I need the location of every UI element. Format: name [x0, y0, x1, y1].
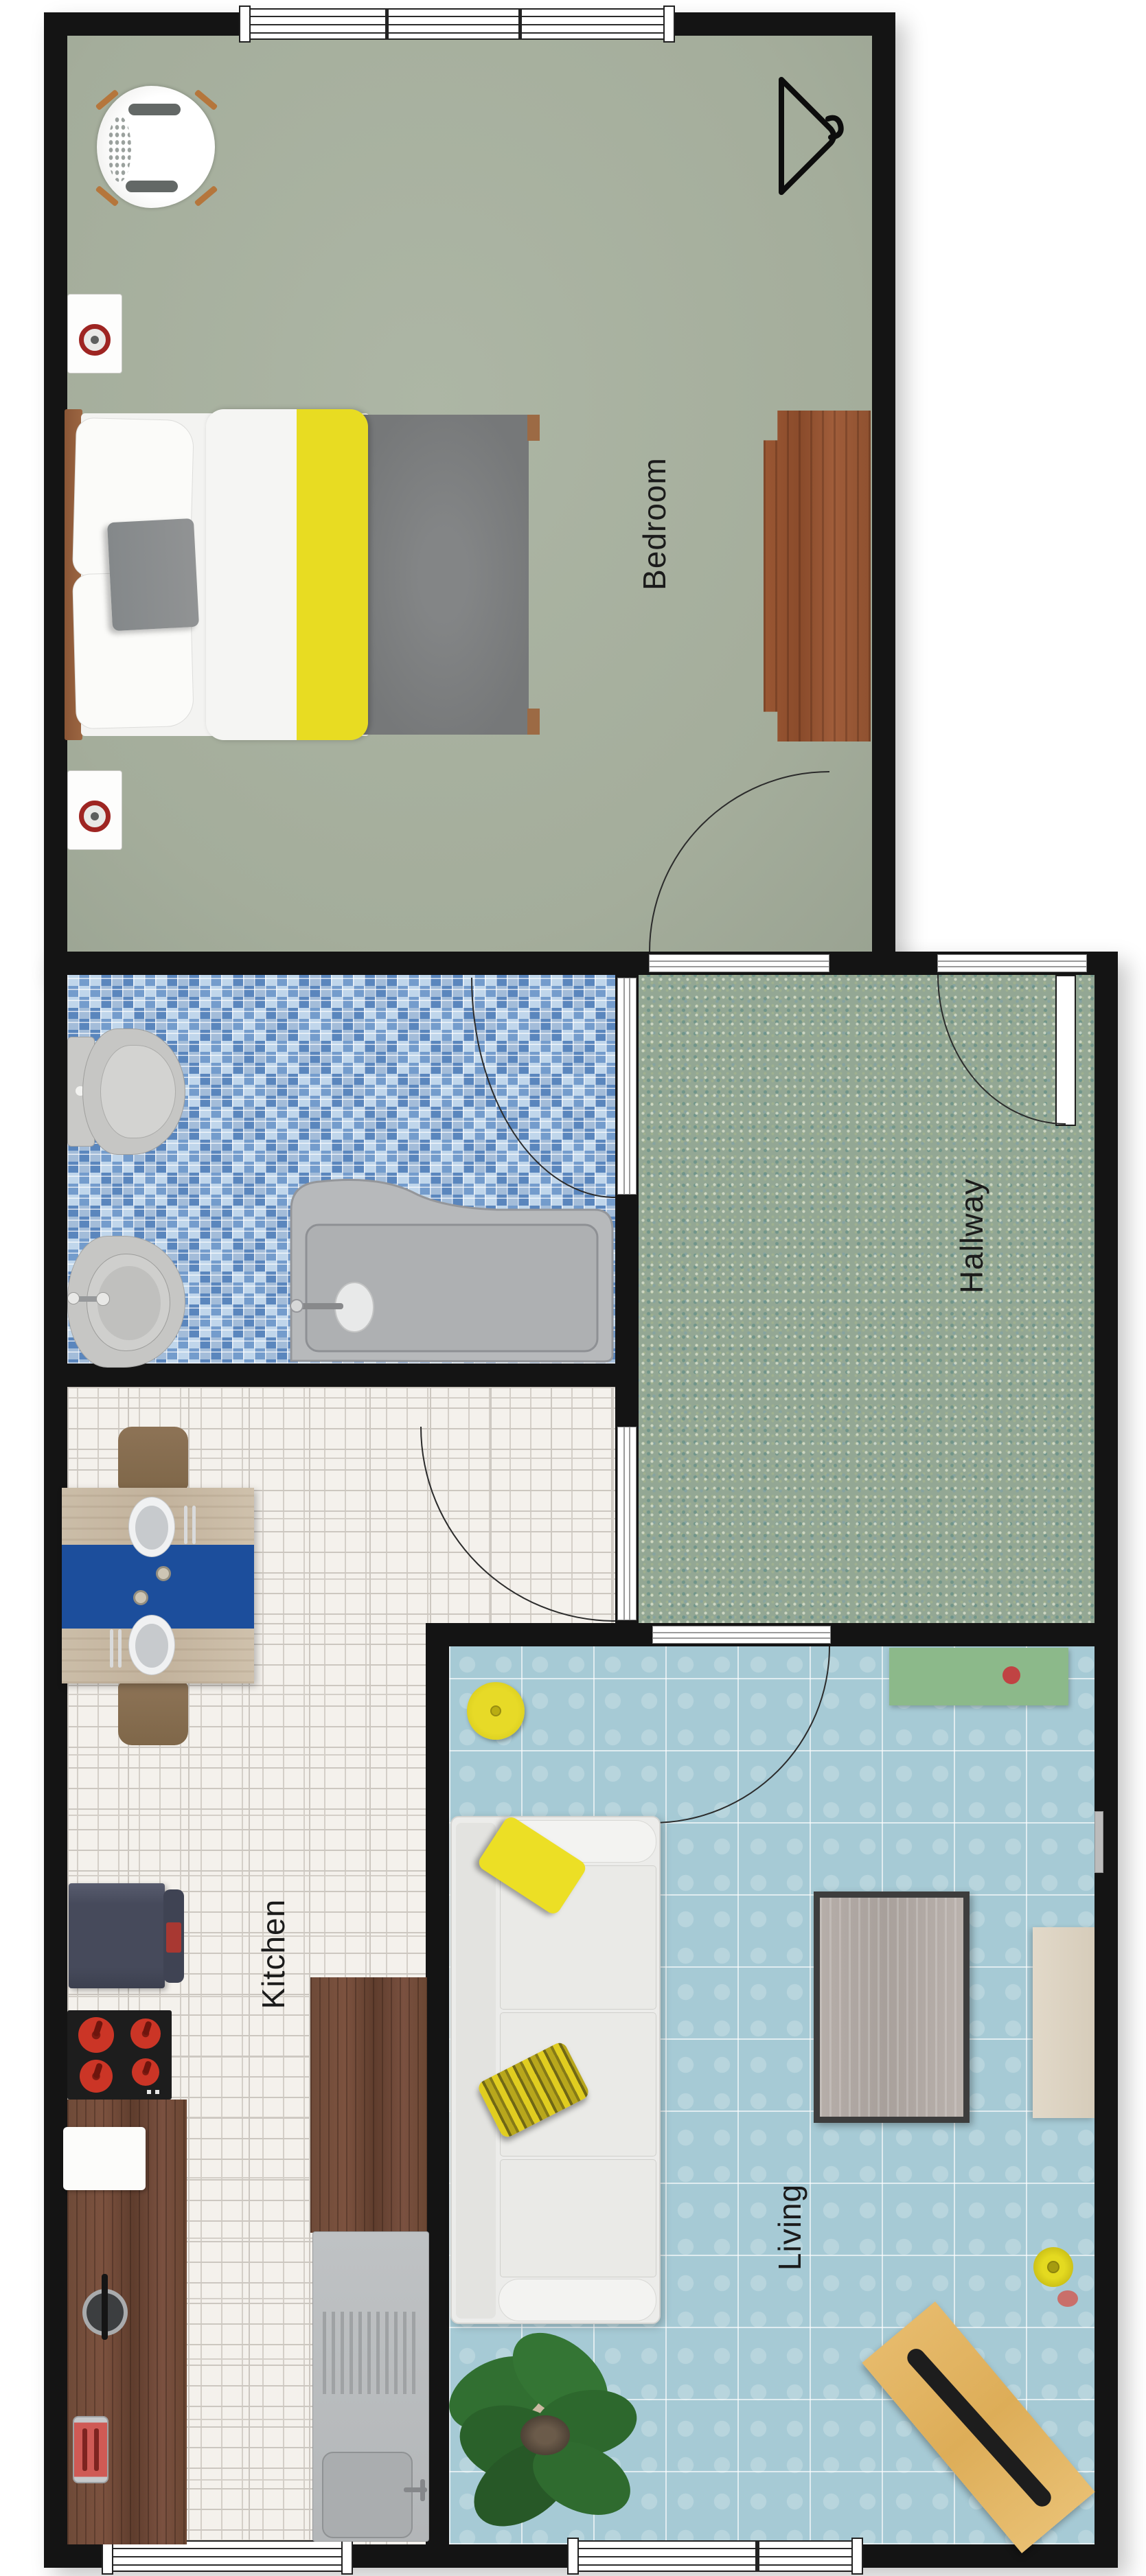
sofa-seat: [500, 2159, 656, 2277]
living-window-jamb-left: [567, 2538, 579, 2575]
burner-mark: [142, 2021, 152, 2036]
burner-mark: [143, 2060, 152, 2074]
side-table: [1033, 1927, 1095, 2118]
kitchen-window-jamb-right: [341, 2538, 353, 2575]
chair-leaf-pattern: [108, 116, 131, 182]
dining-chair: [118, 1427, 188, 1490]
shell-chair: [93, 84, 219, 211]
burner: [80, 2060, 113, 2093]
sofa: [450, 1816, 661, 2324]
living-window-mullion: [755, 2542, 759, 2571]
coffee-table: [814, 1891, 970, 2123]
floor-lamp-center: [1047, 2261, 1059, 2273]
bedroom-window-jamb-left: [239, 5, 251, 43]
bed-accent-pillow: [107, 518, 199, 631]
living-window-jamb-right: [851, 2538, 863, 2575]
glass: [133, 1590, 148, 1605]
cooktop-mark: [155, 2090, 159, 2094]
hallway-label: Hallway: [953, 1178, 990, 1293]
toaster: [73, 2416, 108, 2483]
dining-chair: [118, 1682, 188, 1745]
dresser: [764, 411, 871, 741]
tv-bench: [889, 1648, 1068, 1705]
hanger-icon: [770, 74, 846, 198]
bedroom-window-mullion: [385, 10, 389, 38]
bidet-faucet-knob: [96, 1292, 110, 1306]
lamp-accent-dot: [1057, 2290, 1078, 2307]
bed-frame-corner: [527, 709, 540, 735]
burner: [130, 2019, 161, 2049]
floor-lamp: [1033, 2247, 1073, 2287]
cutting-board: [63, 2127, 146, 2190]
chair-armrest-slot: [126, 181, 178, 192]
bed-frame-corner: [527, 415, 540, 441]
bed-duvet: [206, 409, 368, 740]
bathroom-door-opening: [617, 978, 637, 1195]
bedroom-window: [249, 8, 665, 40]
tv-bench-knob: [1002, 1666, 1020, 1684]
radiator: [1095, 1811, 1103, 1873]
floor-plan: Bedroom Hallway: [0, 0, 1146, 2576]
dining-table: [62, 1488, 254, 1683]
drainer: [323, 2312, 420, 2394]
toaster-slot: [94, 2428, 99, 2471]
pouf: [467, 1682, 525, 1740]
pouf-button: [490, 1705, 501, 1716]
cooktop: [67, 2010, 172, 2100]
cutlery: [110, 1629, 113, 1668]
bedroom-door-opening: [649, 954, 829, 972]
pot-handle: [102, 2274, 108, 2340]
chair-armrest-slot: [128, 104, 181, 115]
toilet: [67, 1028, 185, 1155]
kitchen-counter-island: [310, 1977, 427, 2233]
bidet: [67, 1236, 185, 1368]
fridge-handle-grip: [166, 1922, 181, 1953]
sofa-backrest: [456, 1823, 496, 2319]
wall-bedroom-right: [872, 12, 895, 975]
kitchen-door-opening: [617, 1427, 637, 1620]
wall-right: [1095, 952, 1118, 2568]
cutlery: [192, 1506, 196, 1544]
sofa-armrest: [498, 2279, 656, 2321]
entrance-door-opening: [937, 954, 1087, 972]
living-label: Living: [771, 2184, 808, 2270]
fridge: [69, 1883, 165, 1988]
kitchen-window: [111, 2540, 343, 2572]
plant: [439, 2341, 645, 2540]
double-bed: [65, 409, 540, 740]
cutlery: [118, 1629, 122, 1668]
plant-twigs: [520, 2415, 570, 2455]
bedroom-label: Bedroom: [636, 457, 673, 590]
bathtub: [288, 1175, 615, 1364]
toaster-slot: [82, 2428, 87, 2471]
speaker: [67, 770, 122, 850]
burner-mark: [93, 2020, 104, 2037]
bedroom-window-jamb-right: [663, 5, 675, 43]
burner-mark: [93, 2062, 103, 2078]
speaker: [67, 294, 122, 373]
burner: [132, 2058, 159, 2086]
plate-center: [135, 1624, 168, 1668]
burner: [78, 2017, 114, 2053]
faucet-lever: [420, 2479, 425, 2501]
kitchen-label: Kitchen: [255, 1899, 292, 2009]
fridge-handle: [163, 1889, 184, 1983]
living-window: [577, 2540, 853, 2572]
speaker-dot: [91, 336, 99, 344]
speaker-dot: [91, 812, 99, 820]
plate-center: [135, 1506, 168, 1550]
cooktop-mark: [147, 2090, 151, 2094]
bedroom-window-mullion: [518, 10, 522, 38]
glass: [156, 1566, 171, 1581]
sink-unit: [312, 2231, 429, 2542]
sink-basin: [322, 2452, 413, 2538]
toilet-seat: [100, 1045, 176, 1138]
cutlery: [184, 1506, 187, 1544]
living-door-opening: [652, 1626, 831, 1644]
bed-mattress: [358, 415, 529, 735]
bidet-faucet-knob: [67, 1292, 80, 1304]
